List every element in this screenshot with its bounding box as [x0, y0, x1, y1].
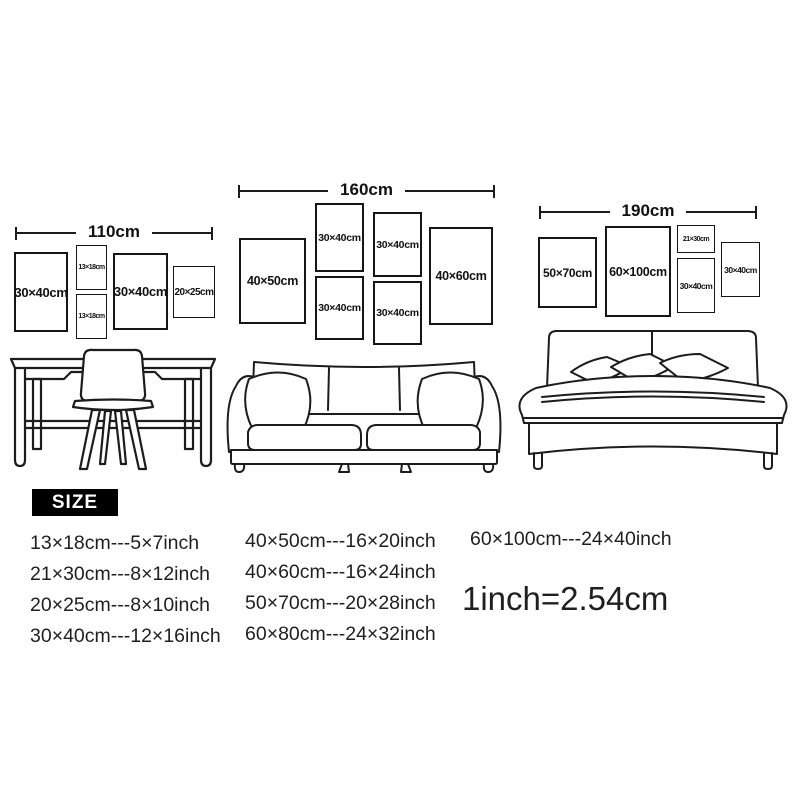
size-row: 20×25cm---8×10inch	[30, 590, 221, 621]
size-column-2: 40×50cm---16×20inch 40×60cm---16×24inch …	[245, 526, 436, 650]
dimension-line-segment	[405, 190, 493, 192]
size-row: 40×60cm---16×24inch	[245, 557, 436, 588]
dimension-line-190cm: 190cm	[539, 205, 757, 219]
size-column-1: 13×18cm---5×7inch 21×30cm---8×12inch 20×…	[30, 528, 221, 652]
frame-13x18cm: 13×18cm	[76, 245, 107, 290]
dimension-tick	[755, 206, 757, 219]
dimension-label: 110cm	[76, 222, 152, 242]
frame-30x40cm: 30×40cm	[113, 253, 168, 330]
frame-30x40cm: 30×40cm	[315, 203, 364, 272]
frame-30x40cm: 30×40cm	[315, 276, 364, 340]
dimension-tick	[493, 185, 495, 198]
dimension-line-segment	[152, 232, 211, 234]
size-column-3: 60×100cm---24×40inch	[470, 524, 672, 555]
inch-conversion-note: 1inch=2.54cm	[462, 580, 668, 618]
dimension-line-segment	[686, 211, 755, 213]
size-row: 50×70cm---20×28inch	[245, 588, 436, 619]
dimension-line-160cm: 160cm	[238, 184, 495, 198]
frame-30x40cm: 30×40cm	[677, 258, 715, 313]
dimension-label: 160cm	[328, 180, 405, 200]
frame-20x25cm: 20×25cm	[173, 266, 215, 318]
frame-21x30cm: 21×30cm	[677, 225, 715, 253]
dimension-line-segment	[17, 232, 76, 234]
frame-40x50cm: 40×50cm	[239, 238, 306, 324]
dimension-line-segment	[240, 190, 328, 192]
size-row: 30×40cm---12×16inch	[30, 621, 221, 652]
size-chart-title: SIZE	[32, 489, 118, 516]
dimension-label: 190cm	[610, 201, 687, 221]
sofa-illustration	[216, 348, 512, 474]
frame-60x100cm: 60×100cm	[605, 226, 671, 317]
frame-30x40cm: 30×40cm	[373, 281, 422, 345]
bed-illustration	[511, 326, 795, 472]
frame-40x60cm: 40×60cm	[429, 227, 493, 325]
frame-13x18cm: 13×18cm	[76, 294, 107, 339]
size-row: 13×18cm---5×7inch	[30, 528, 221, 559]
size-row: 40×50cm---16×20inch	[245, 526, 436, 557]
desk-chair-illustration	[8, 347, 218, 473]
wall-art-size-guide: 110cm 30×40cm 13×18cm 13×18cm 30×40cm 20…	[0, 0, 800, 800]
frame-30x40cm: 30×40cm	[14, 252, 68, 332]
dimension-line-segment	[541, 211, 610, 213]
dimension-tick	[211, 227, 213, 240]
frame-30x40cm: 30×40cm	[721, 242, 760, 297]
frame-50x70cm: 50×70cm	[538, 237, 597, 308]
frame-30x40cm: 30×40cm	[373, 212, 422, 277]
size-row: 60×100cm---24×40inch	[470, 524, 672, 555]
size-row: 21×30cm---8×12inch	[30, 559, 221, 590]
size-row: 60×80cm---24×32inch	[245, 619, 436, 650]
dimension-line-110cm: 110cm	[15, 226, 213, 240]
